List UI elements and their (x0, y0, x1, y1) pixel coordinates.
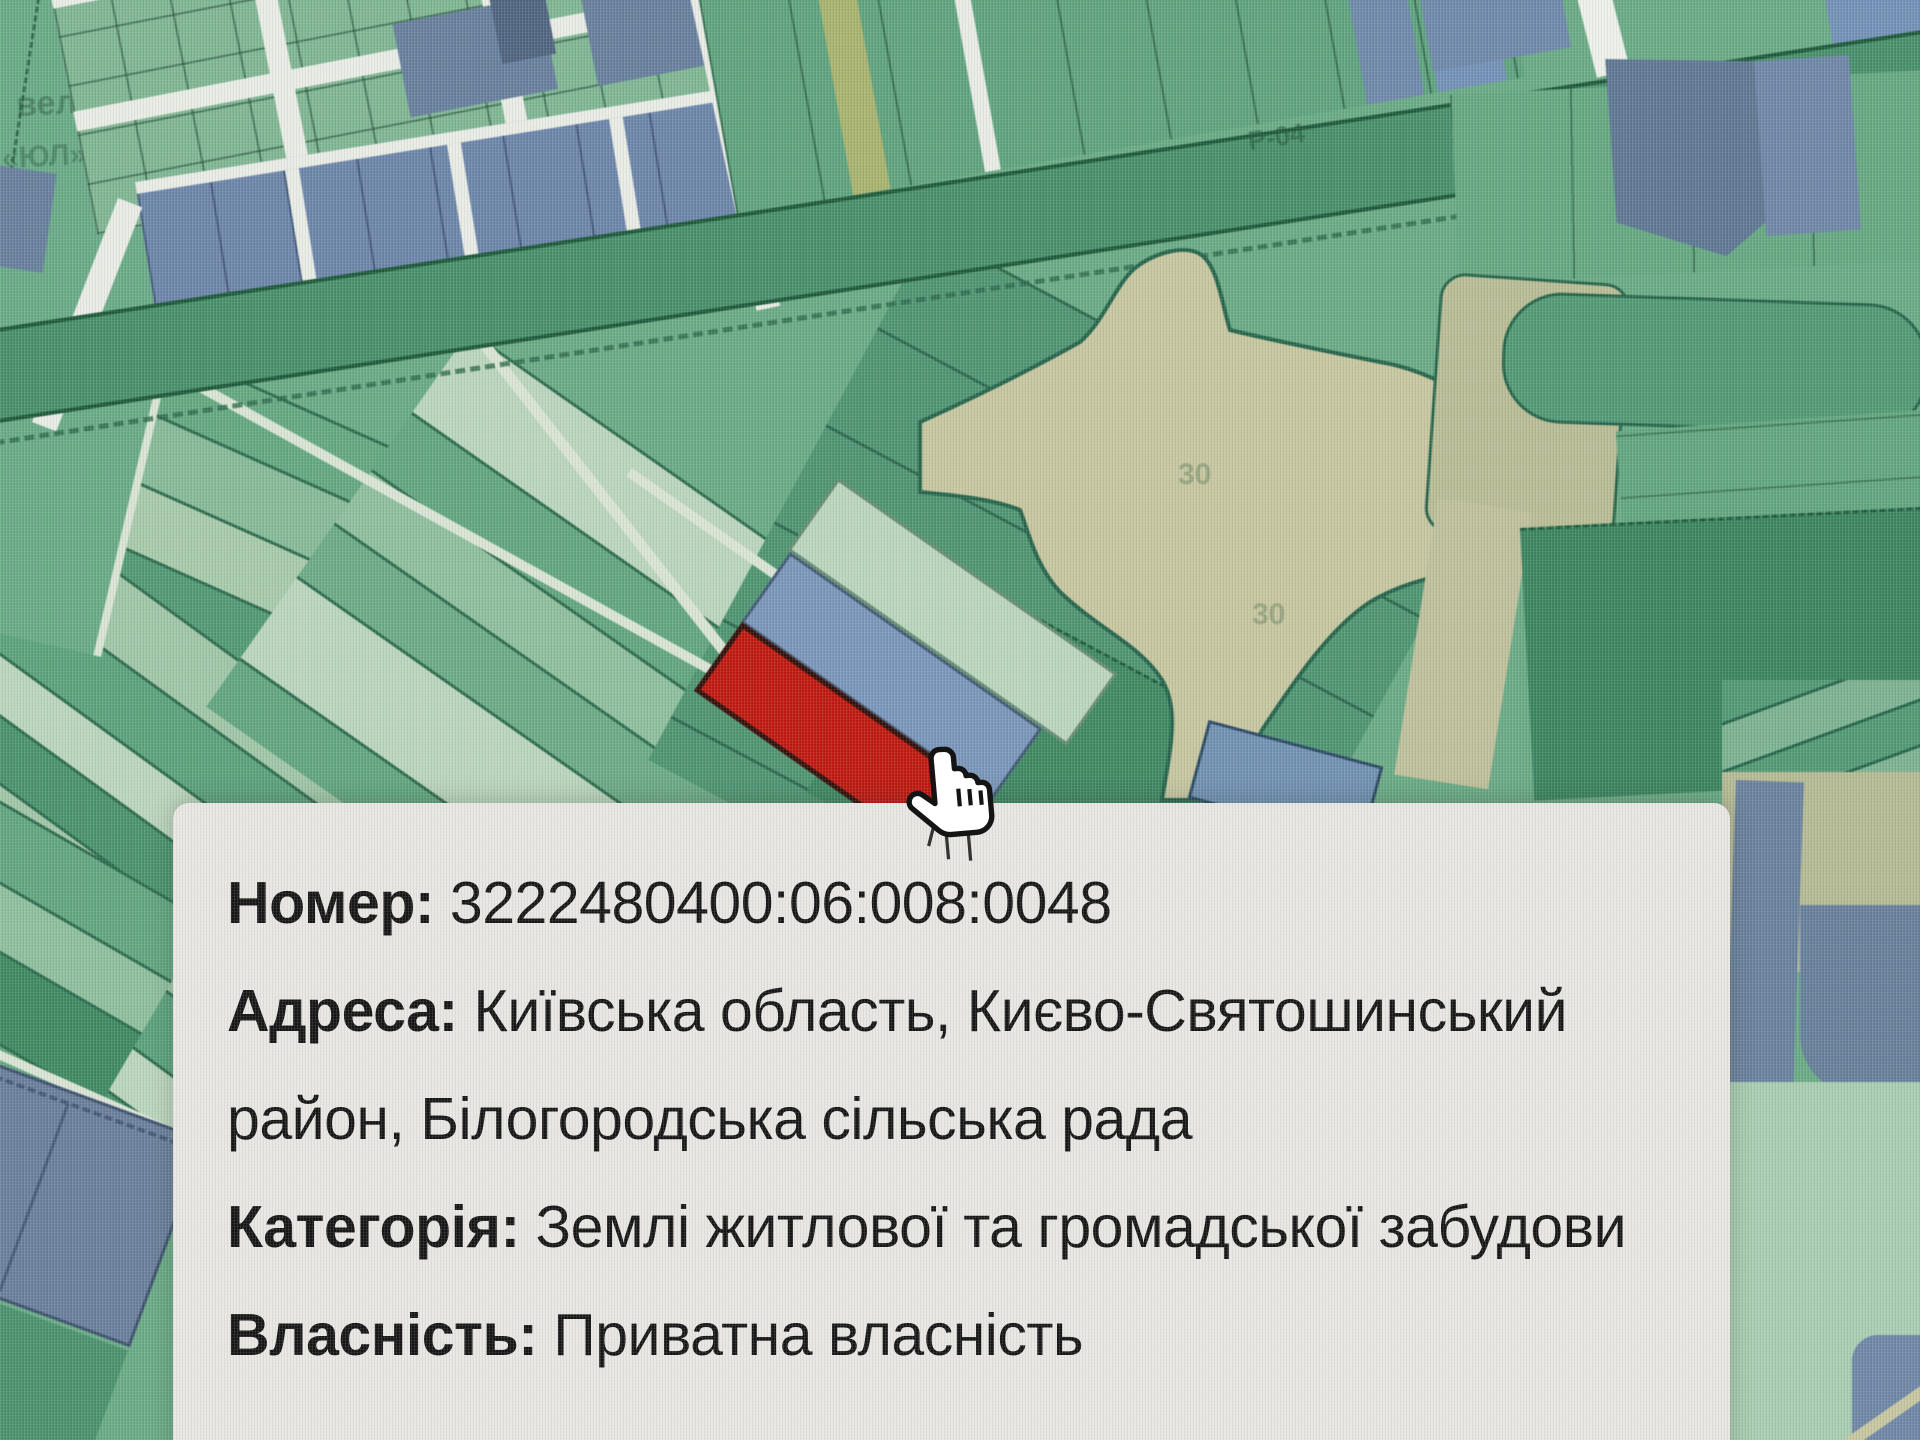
map-label-faint: 30 (1178, 458, 1211, 492)
cadastral-map-screen: вело «ЮЛ» Р-04 30 30 (0, 0, 1920, 1440)
popup-field-label: Номер: (227, 870, 434, 936)
hand-pointer-cursor (893, 735, 1016, 872)
map-street (938, 0, 1001, 172)
popup-field-label: Власність: (227, 1302, 537, 1368)
map-parcel[interactable] (1320, 0, 1424, 105)
popup-field-ownership: Власність: Приватна власність (227, 1281, 1680, 1389)
map-parcel-blue[interactable] (1725, 780, 1804, 1087)
popup-field-value: 3222480400:06:008:0048 (450, 870, 1112, 936)
popup-field-label: Категорія: (227, 1194, 520, 1260)
map-parcel-blue[interactable] (1800, 905, 1920, 1095)
popup-field-address: Адреса: Київська область, Києво-Святошин… (227, 957, 1680, 1173)
popup-field-value: Приватна власність (553, 1302, 1083, 1368)
map-label-faint: 30 (1252, 598, 1285, 632)
map-parcel[interactable] (1754, 55, 1861, 236)
map-label-faint: «ЮЛ» (1, 138, 87, 176)
popup-field-category: Категорія: Землі житлової та громадської… (227, 1173, 1680, 1281)
parcel-info-popup: Номер: 3222480400:06:008:0048 Адреса: Ки… (173, 803, 1730, 1440)
popup-field-label: Адреса: (227, 978, 458, 1044)
map-parcel-boundary (0, 1103, 70, 1292)
popup-field-value: Землі житлової та громадської забудови (536, 1194, 1627, 1260)
map-parcel[interactable] (806, 0, 890, 195)
